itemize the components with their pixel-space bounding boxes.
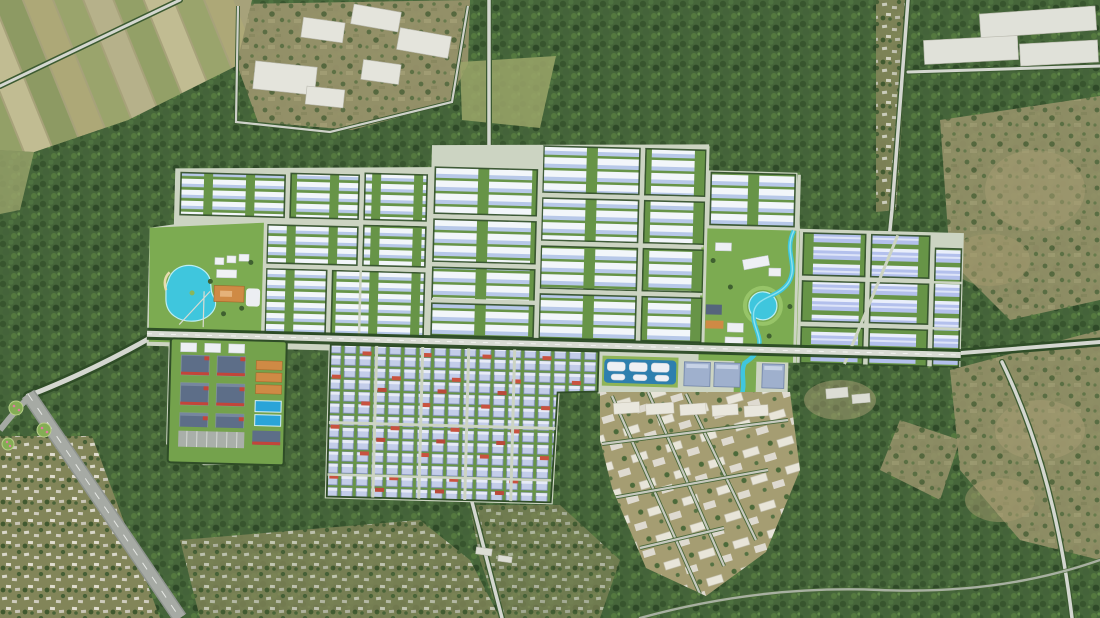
masterplan-svg	[0, 0, 1100, 618]
aerial-masterplan-render	[0, 0, 1100, 618]
ready-built-district	[168, 338, 287, 465]
west-lake-park	[147, 220, 264, 345]
